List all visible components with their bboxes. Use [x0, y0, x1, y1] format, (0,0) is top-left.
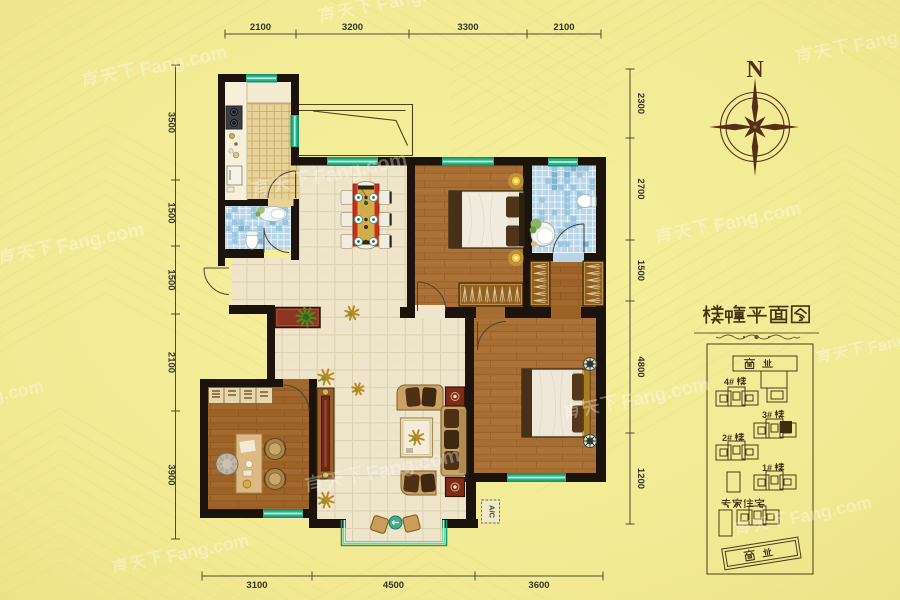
svg-text:3500: 3500 — [166, 112, 177, 133]
svg-text:2100: 2100 — [553, 22, 574, 33]
svg-text:4#: 4# — [724, 377, 734, 387]
svg-text:1500: 1500 — [635, 260, 646, 281]
svg-text:2#: 2# — [722, 433, 732, 443]
svg-text:3900: 3900 — [166, 464, 177, 485]
svg-text:2100: 2100 — [250, 22, 271, 33]
svg-text:1500: 1500 — [166, 269, 177, 290]
svg-text:2700: 2700 — [635, 178, 646, 199]
svg-text:4800: 4800 — [635, 356, 646, 377]
svg-text:3100: 3100 — [246, 580, 267, 591]
svg-text:1#: 1# — [762, 463, 772, 473]
svg-text:1200: 1200 — [635, 468, 646, 489]
svg-text:4500: 4500 — [383, 580, 404, 591]
svg-text:A/C: A/C — [488, 505, 497, 519]
svg-text:2100: 2100 — [166, 352, 177, 373]
svg-text:1500: 1500 — [166, 202, 177, 223]
svg-text:N: N — [746, 57, 764, 83]
svg-text:2300: 2300 — [635, 93, 646, 114]
svg-text:3200: 3200 — [342, 22, 363, 33]
svg-text:3600: 3600 — [528, 580, 549, 591]
svg-text:3#: 3# — [762, 410, 772, 420]
svg-text:3300: 3300 — [457, 22, 478, 33]
